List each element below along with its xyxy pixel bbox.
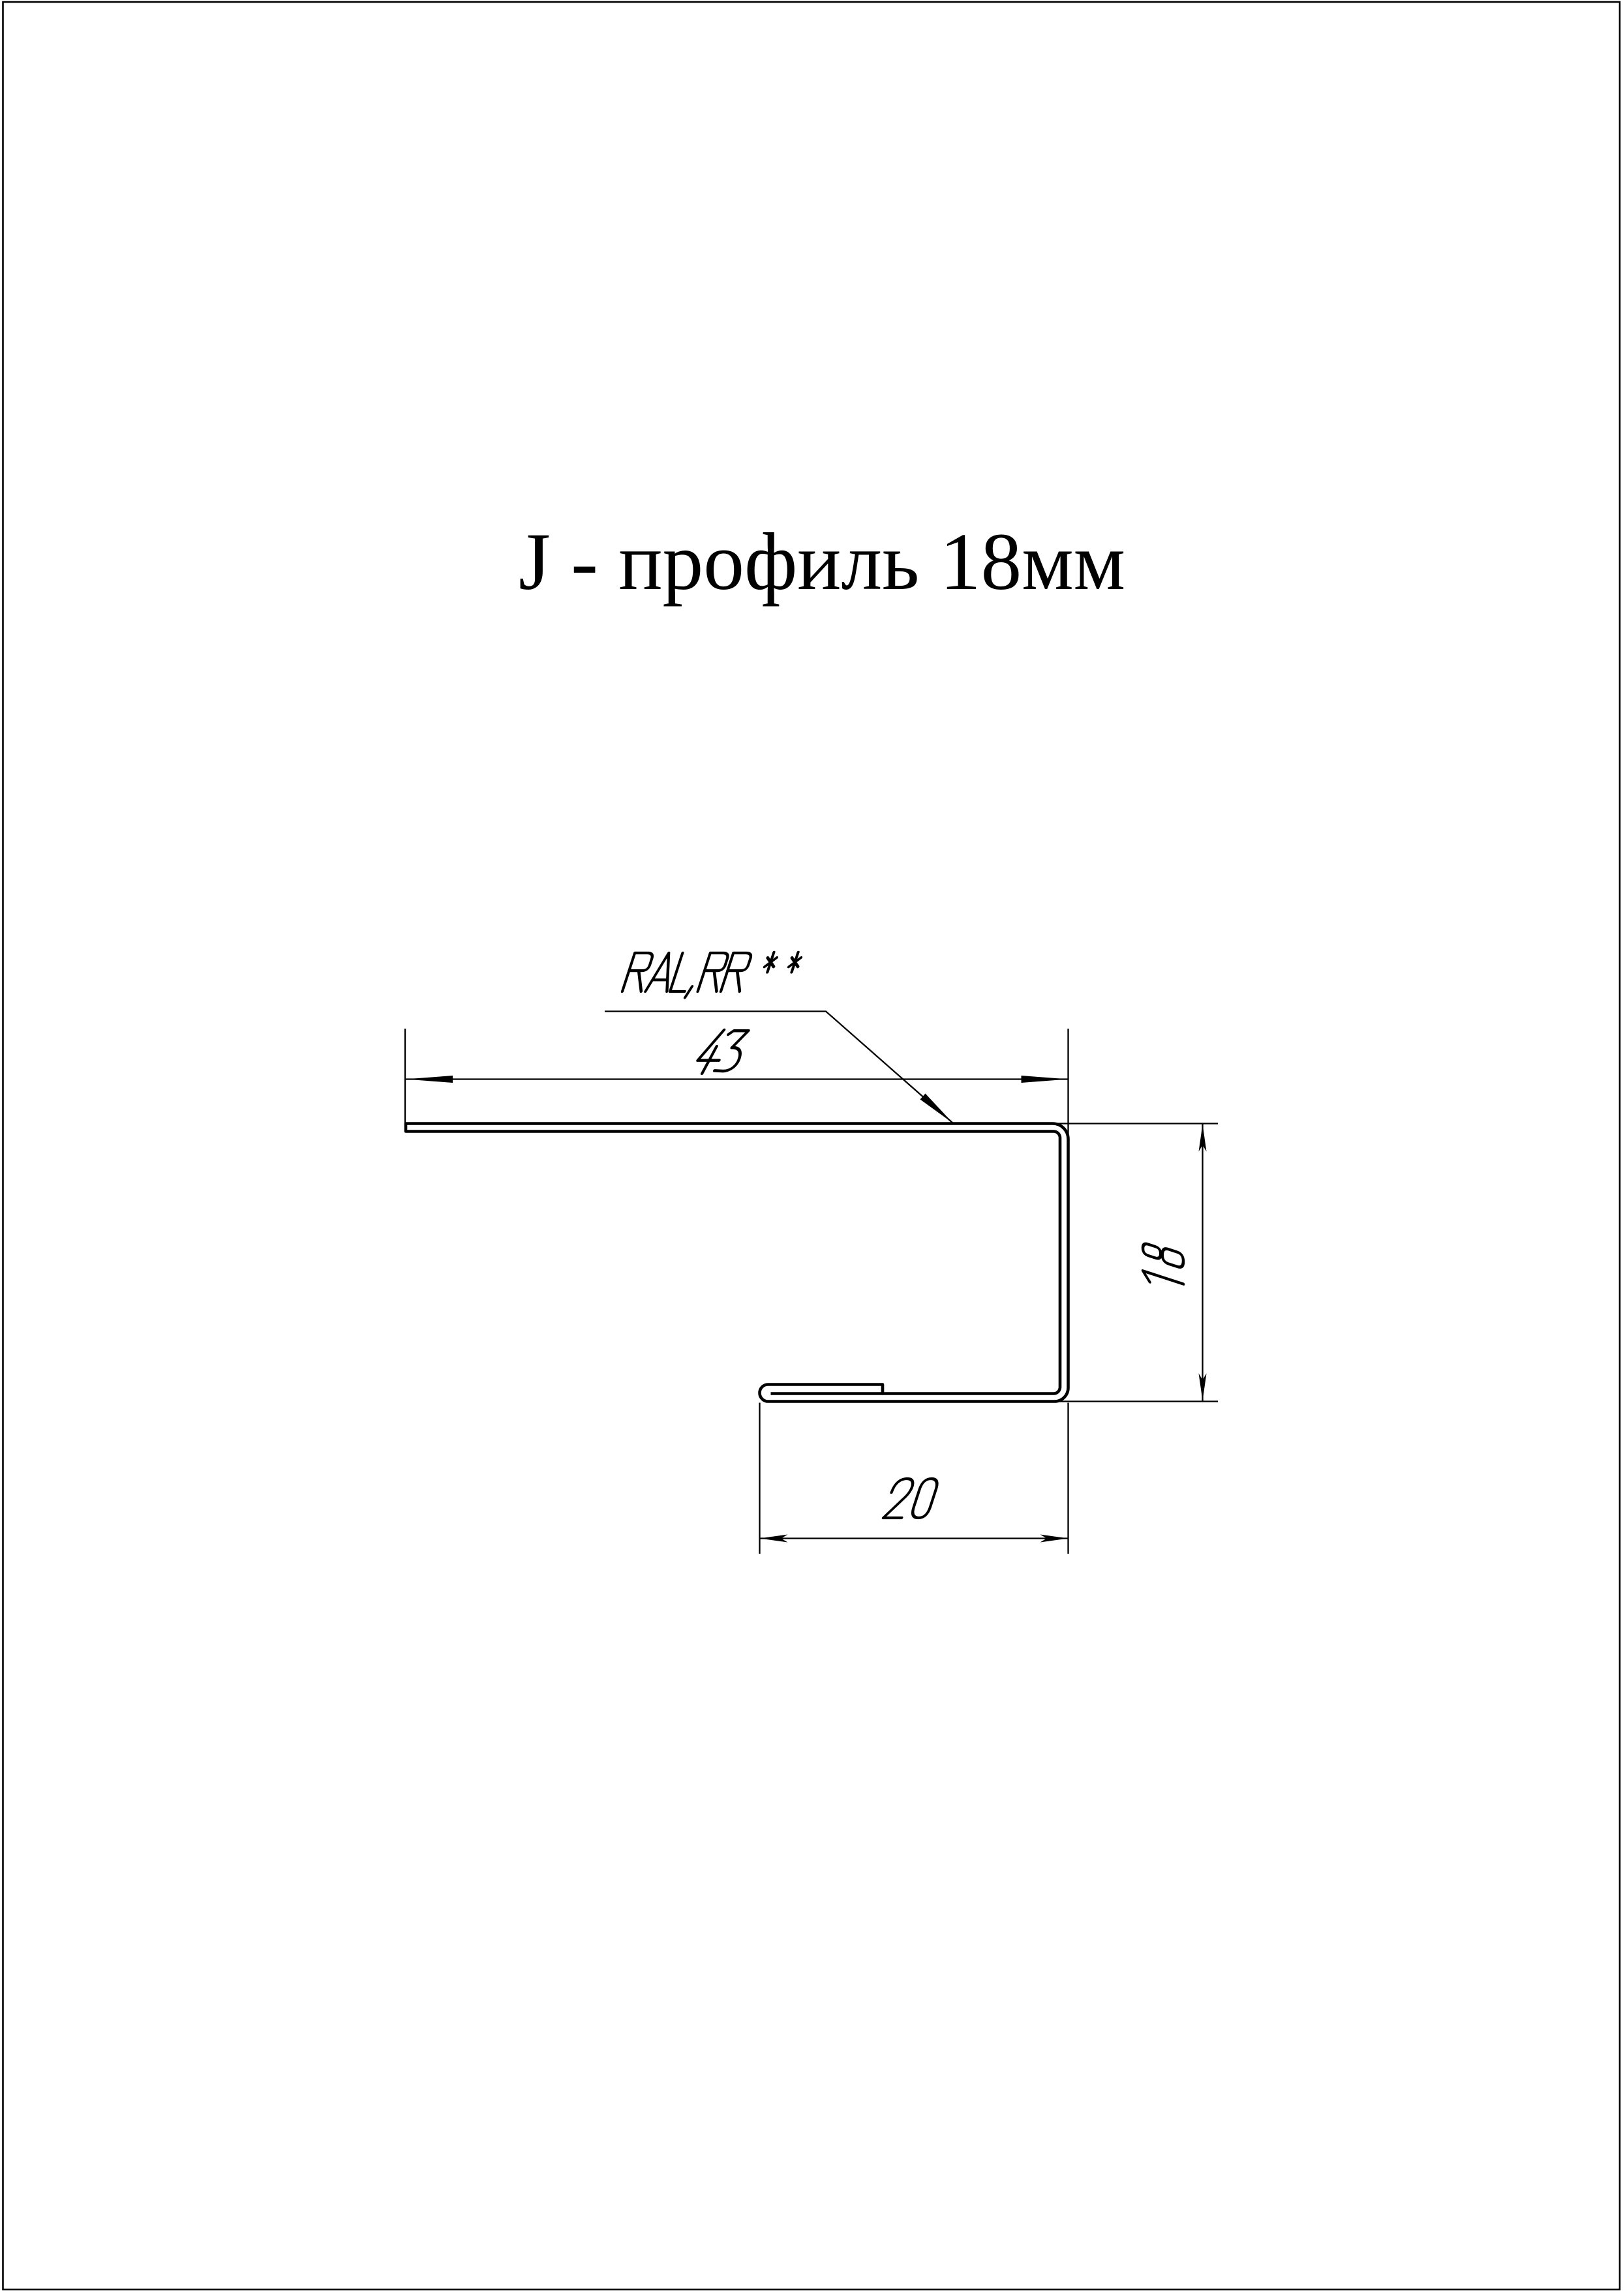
svg-text:J - профиль 18мм: J - профиль 18мм (519, 517, 1125, 607)
